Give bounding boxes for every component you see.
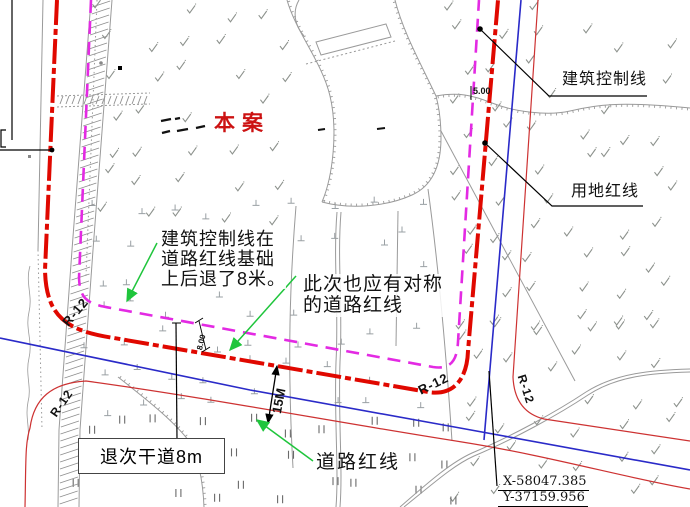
site-plan-drawing: 本案 建筑控制线在 道路红线基础 上后退了8米。 此次也应有对称 的道路红线 建… xyxy=(0,0,690,507)
building-control-line-label: 建筑控制线 xyxy=(562,71,647,89)
road-red-line-label: 道路红线 xyxy=(316,452,400,473)
arrow-to-control-line xyxy=(127,243,157,301)
setback-note-line2: 道路红线基础 xyxy=(161,249,286,269)
symmetry-note: 此次也应有对称 的道路红线 xyxy=(303,274,443,317)
leader-lines xyxy=(0,0,647,486)
redaction-marks xyxy=(161,118,385,133)
symmetry-note-line2: 的道路红线 xyxy=(303,295,443,316)
building-outline xyxy=(316,24,391,55)
arrow-to-road-red-line xyxy=(257,420,313,461)
land-use-red-line-label: 用地红线 xyxy=(571,183,639,201)
setback-note-line1: 建筑控制线在 xyxy=(161,229,286,249)
symmetry-note-line1: 此次也应有对称 xyxy=(303,274,443,295)
dim-5m: 5.00 xyxy=(473,86,491,96)
setback-note: 建筑控制线在 道路红线基础 上后退了8米。 xyxy=(161,229,286,289)
coordinate-y: Y-37159.956 xyxy=(498,491,588,507)
land-use-red-line xyxy=(45,0,498,393)
road-edge-hatching xyxy=(60,1,147,504)
setback-dimension-box: 退次干道8m xyxy=(78,438,225,474)
coordinate-x: X-58047.385 xyxy=(498,475,589,491)
setback-note-line3: 上后退了8米。 xyxy=(161,269,286,289)
case-marker-label: 本案 xyxy=(214,112,270,136)
